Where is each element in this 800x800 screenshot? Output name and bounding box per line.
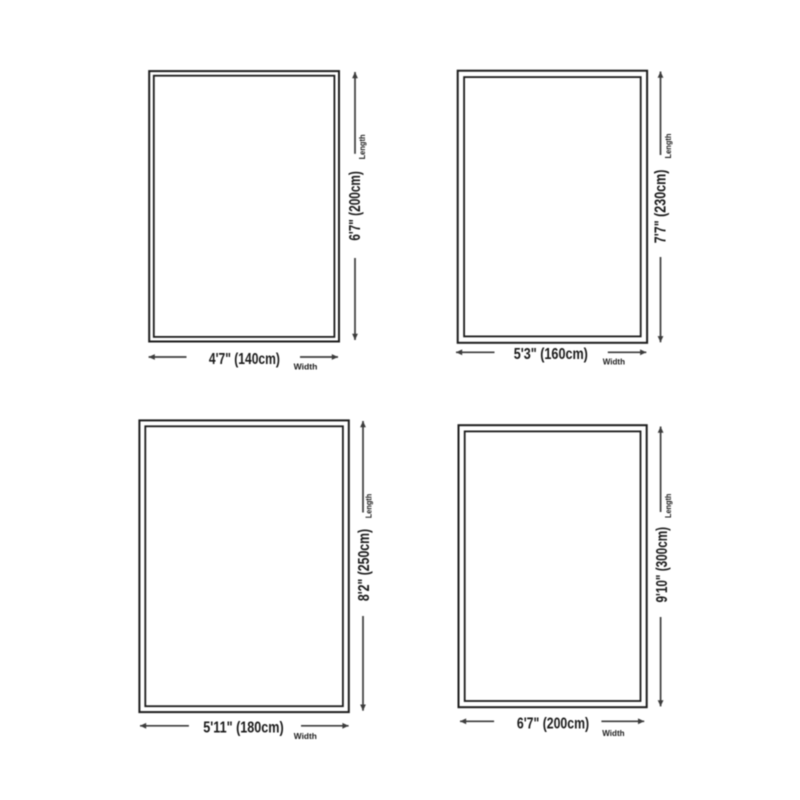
svg-text:Length: Length bbox=[357, 134, 367, 159]
svg-text:Width: Width bbox=[602, 728, 624, 738]
svg-text:Length: Length bbox=[364, 494, 374, 518]
svg-text:Width: Width bbox=[294, 361, 318, 371]
svg-text:Length: Length bbox=[663, 494, 673, 518]
svg-text:7'7" (230cm): 7'7" (230cm) bbox=[653, 170, 670, 244]
svg-text:Width: Width bbox=[294, 731, 317, 741]
svg-text:6'7" (200cm): 6'7" (200cm) bbox=[517, 716, 589, 733]
svg-text:8'2" (250cm): 8'2" (250cm) bbox=[356, 529, 373, 601]
svg-text:4'7" (140cm): 4'7" (140cm) bbox=[209, 351, 280, 368]
svg-text:Length: Length bbox=[663, 134, 673, 159]
svg-text:9'10" (300cm): 9'10" (300cm) bbox=[654, 527, 671, 603]
svg-text:6'7" (200cm): 6'7" (200cm) bbox=[347, 171, 364, 241]
svg-text:5'3" (160cm): 5'3" (160cm) bbox=[514, 346, 588, 363]
svg-text:5'11" (180cm): 5'11" (180cm) bbox=[203, 720, 283, 737]
svg-text:Width: Width bbox=[603, 356, 625, 366]
